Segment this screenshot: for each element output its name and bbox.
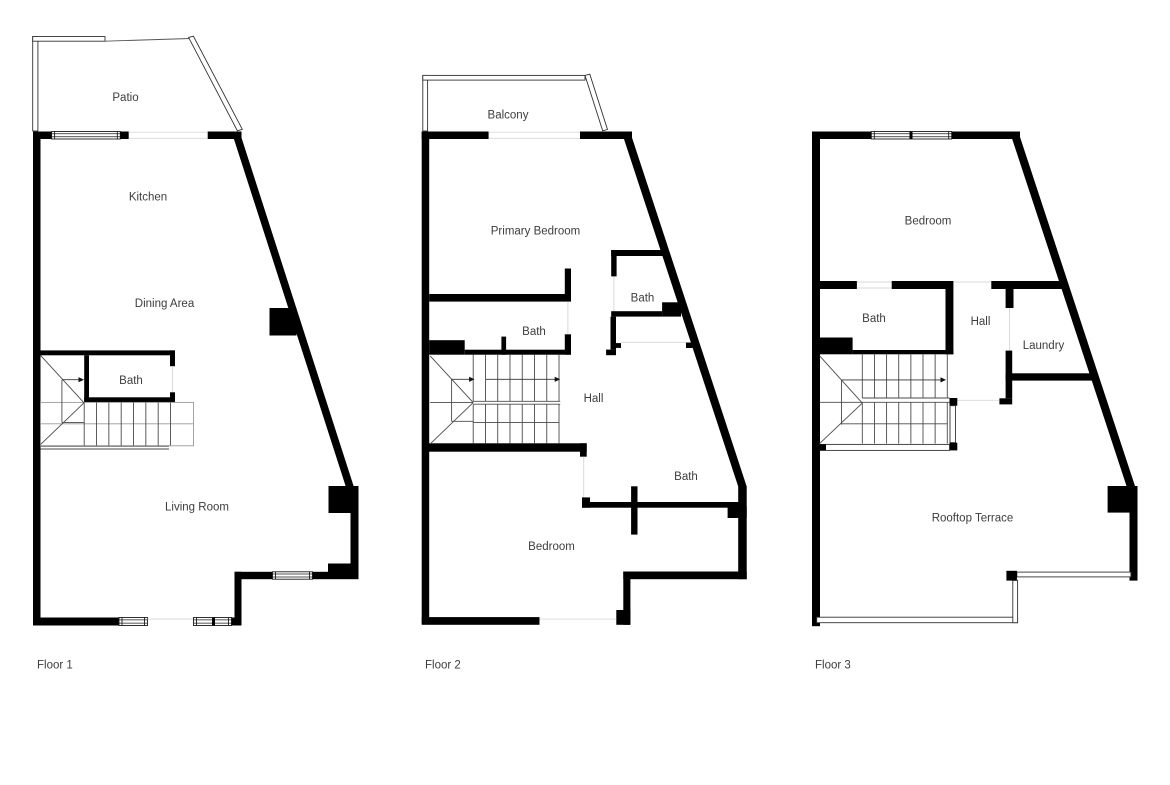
svg-text:Bath: Bath bbox=[522, 326, 546, 338]
svg-text:Rooftop Terrace: Rooftop Terrace bbox=[932, 513, 1014, 525]
svg-text:Laundry: Laundry bbox=[1023, 340, 1065, 352]
svg-text:Bedroom: Bedroom bbox=[528, 541, 575, 553]
svg-text:Floor 3: Floor 3 bbox=[815, 660, 851, 672]
svg-text:Floor 2: Floor 2 bbox=[425, 660, 461, 672]
svg-text:Primary Bedroom: Primary Bedroom bbox=[491, 226, 580, 238]
svg-text:Bedroom: Bedroom bbox=[905, 216, 952, 228]
svg-text:Hall: Hall bbox=[584, 393, 604, 405]
svg-text:Bath: Bath bbox=[862, 313, 886, 325]
svg-text:Patio: Patio bbox=[112, 92, 138, 104]
svg-text:Bath: Bath bbox=[674, 471, 698, 483]
svg-text:Balcony: Balcony bbox=[488, 110, 529, 122]
svg-text:Bath: Bath bbox=[631, 293, 655, 305]
svg-text:Living Room: Living Room bbox=[165, 502, 229, 514]
svg-text:Bath: Bath bbox=[119, 375, 143, 387]
svg-text:Dining Area: Dining Area bbox=[135, 298, 195, 310]
svg-text:Floor 1: Floor 1 bbox=[37, 660, 73, 672]
svg-text:Kitchen: Kitchen bbox=[129, 192, 167, 204]
svg-text:Hall: Hall bbox=[971, 316, 991, 328]
